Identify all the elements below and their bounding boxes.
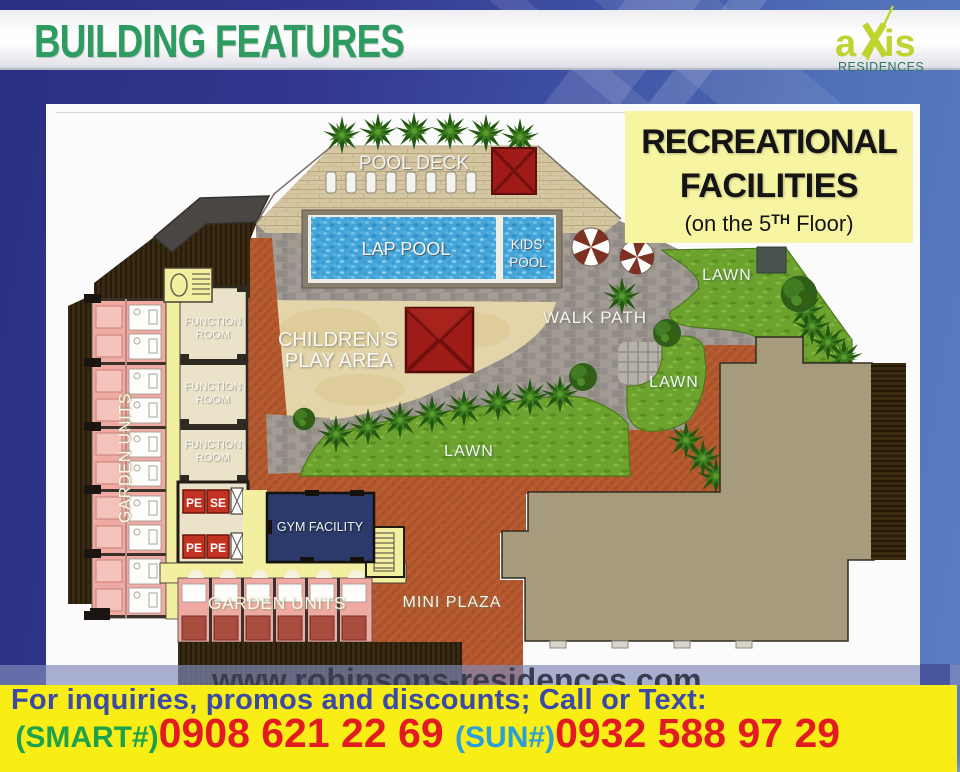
svg-text:LAP POOL: LAP POOL bbox=[362, 239, 451, 259]
svg-text:LAWN: LAWN bbox=[649, 374, 699, 391]
svg-text:KIDS’: KIDS’ bbox=[511, 237, 546, 252]
svg-text:a: a bbox=[835, 23, 857, 65]
svg-text:POOL: POOL bbox=[509, 255, 547, 270]
svg-text:PLAY AREA: PLAY AREA bbox=[285, 350, 394, 372]
svg-text:PE: PE bbox=[210, 541, 226, 555]
svg-text:PE: PE bbox=[186, 496, 202, 510]
svg-text:POOL DECK: POOL DECK bbox=[359, 153, 469, 174]
svg-text:GARDEN UNITS: GARDEN UNITS bbox=[208, 593, 346, 613]
svg-text:WALK PATH: WALK PATH bbox=[543, 308, 647, 327]
svg-text:CHILDREN’S: CHILDREN’S bbox=[278, 329, 398, 351]
svg-text:GARDEN UNITS: GARDEN UNITS bbox=[117, 393, 134, 524]
svg-text:SE: SE bbox=[210, 496, 226, 510]
svg-text:FUNCTION: FUNCTION bbox=[185, 381, 242, 393]
svg-text:ROOM: ROOM bbox=[196, 329, 230, 341]
svg-text:MINI PLAZA: MINI PLAZA bbox=[403, 594, 502, 611]
svg-text:LAWN: LAWN bbox=[702, 267, 752, 284]
svg-text:PE: PE bbox=[186, 541, 202, 555]
svg-text:FUNCTION: FUNCTION bbox=[185, 316, 242, 328]
svg-text:FUNCTION: FUNCTION bbox=[185, 439, 242, 451]
svg-text:RESIDENCES: RESIDENCES bbox=[838, 60, 924, 74]
svg-text:ROOM: ROOM bbox=[196, 452, 230, 464]
svg-text:LAWN: LAWN bbox=[444, 443, 494, 460]
svg-text:is: is bbox=[884, 23, 916, 65]
svg-text:ROOM: ROOM bbox=[196, 394, 230, 406]
svg-text:GYM FACILITY: GYM FACILITY bbox=[277, 520, 364, 534]
